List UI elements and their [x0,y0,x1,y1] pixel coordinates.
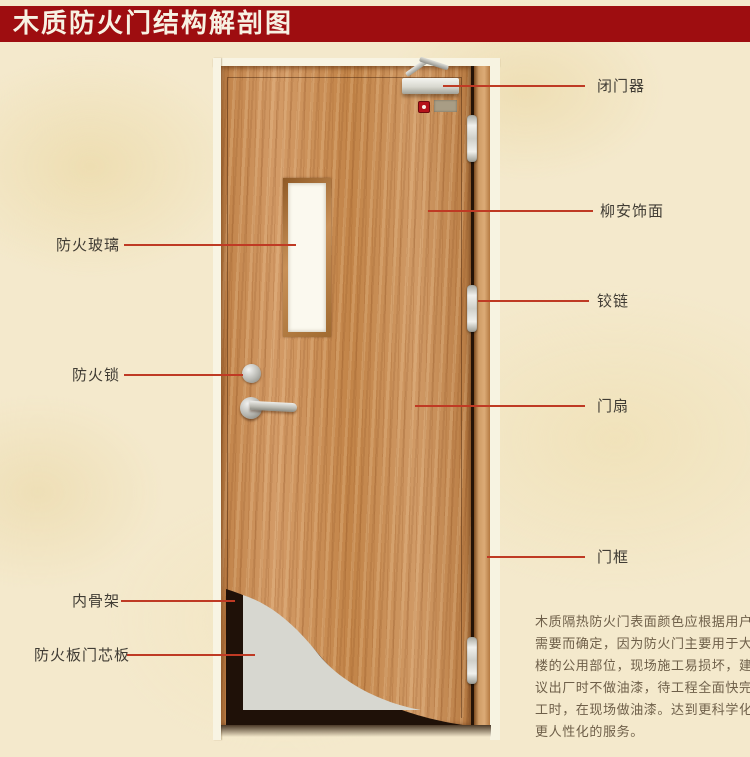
leader-line-lauan-veneer [428,210,593,212]
label-lauan-veneer: 柳安饰面 [600,202,664,220]
page-title: 木质防火门结构解剖图 [0,11,293,37]
label-inner-skeleton: 内骨架 [0,592,120,610]
fire-glass-panel [288,183,326,332]
label-fire-lock: 防火锁 [0,366,120,384]
label-hinge: 铰链 [597,292,629,310]
vision-panel-frame [283,178,331,337]
door-frame-right [490,58,500,740]
hinge-top [467,115,477,162]
leader-line-fire-glass [124,244,296,246]
alarm-indicator [418,101,430,113]
leader-line-hinge [478,300,589,302]
door-frame-left [213,58,221,740]
door-bottom-shadow [221,725,491,737]
hinge-middle [467,285,477,332]
label-door-frame: 门框 [597,548,629,566]
lock-cylinder [242,364,261,383]
leader-line-door-closer [443,85,585,87]
cutaway-section [221,579,471,726]
leader-line-door-frame [487,556,585,558]
leader-line-fire-lock [124,374,243,376]
description-text: 木质隔热防火门表面颜色应根据用户需要而确定，因为防火门主要用于大楼的公用部位，现… [535,612,750,744]
leader-line-door-leaf [415,405,585,407]
label-door-closer: 闭门器 [597,77,645,95]
label-fire-board-core: 防火板门芯板 [10,646,130,664]
door-frame-top [213,58,500,66]
label-fire-glass: 防火玻璃 [0,236,120,254]
leader-line-inner-skeleton [121,600,235,602]
title-banner: 木质防火门结构解剖图 [0,6,750,42]
label-plate [434,100,457,112]
core-panel-section [243,595,421,710]
leader-line-fire-board-core [127,654,255,656]
label-door-leaf: 门扇 [597,397,629,415]
door-jamb [474,66,490,725]
